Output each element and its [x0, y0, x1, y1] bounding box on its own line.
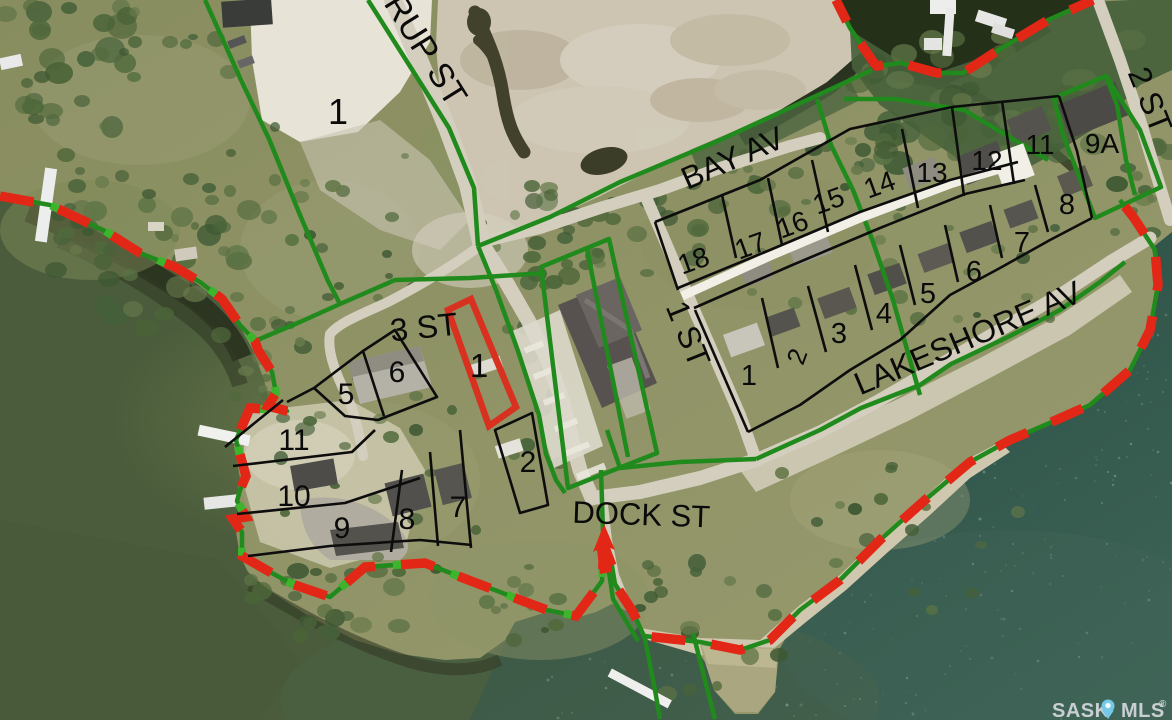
svg-text:1: 1 — [741, 360, 757, 392]
svg-text:12: 12 — [971, 145, 1002, 176]
svg-text:7: 7 — [1014, 227, 1030, 259]
svg-text:DOCK ST: DOCK ST — [572, 495, 711, 535]
svg-text:8: 8 — [1059, 189, 1075, 221]
svg-text:8: 8 — [399, 503, 416, 536]
svg-text:®: ® — [1159, 699, 1167, 710]
svg-text:3: 3 — [831, 318, 847, 350]
svg-text:10: 10 — [277, 480, 310, 513]
svg-text:3 ST: 3 ST — [388, 306, 459, 349]
svg-text:4: 4 — [876, 298, 892, 330]
svg-text:11: 11 — [278, 424, 309, 457]
svg-text:1: 1 — [328, 91, 348, 132]
svg-text:6: 6 — [389, 356, 406, 389]
svg-text:5: 5 — [338, 378, 355, 411]
svg-text:9: 9 — [334, 512, 351, 545]
svg-text:5: 5 — [920, 278, 936, 310]
svg-text:9A: 9A — [1085, 128, 1120, 159]
svg-text:SASK: SASK — [1052, 700, 1110, 720]
svg-text:6: 6 — [966, 256, 982, 288]
svg-text:11: 11 — [1025, 129, 1054, 160]
svg-text:1: 1 — [470, 347, 488, 384]
svg-text:7: 7 — [450, 491, 467, 524]
svg-text:2: 2 — [520, 446, 537, 479]
svg-text:13: 13 — [916, 157, 947, 188]
